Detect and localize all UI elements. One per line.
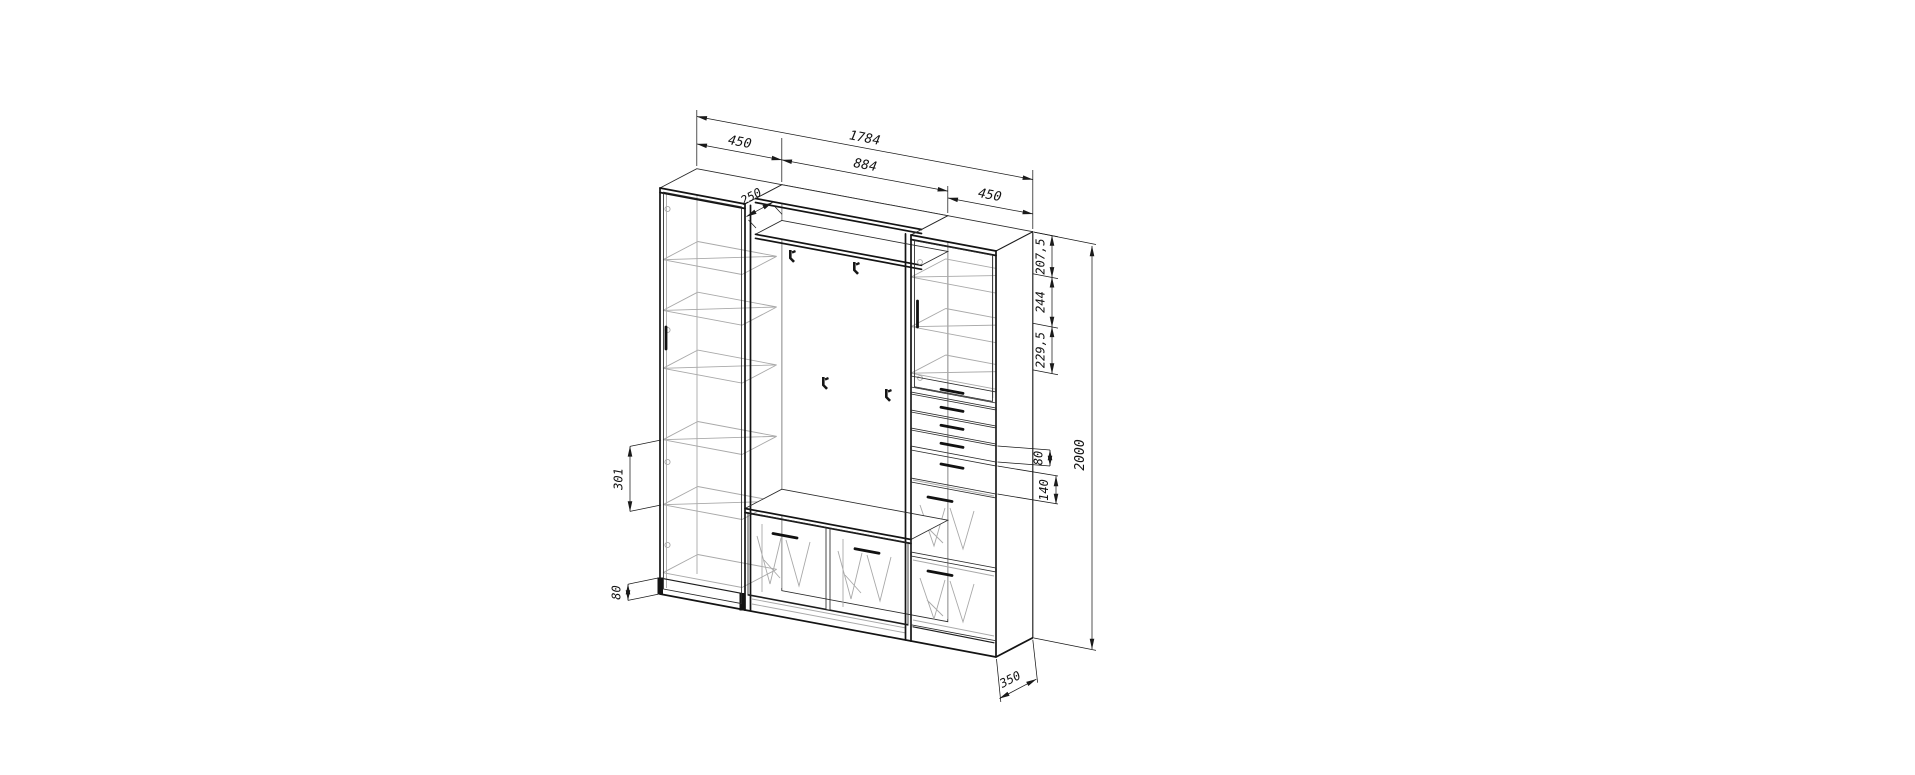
dim-right-gap-lower: 229,5 (1034, 332, 1048, 368)
dim-left-shelf-spacing: 301 (612, 468, 626, 491)
dim-drawer-height: 80 (1032, 451, 1046, 465)
dim-right-cabinet-width: 450 (977, 186, 1003, 205)
drawing-canvas: 1784 450 884 450 250 207,5 244 229,5 80 … (0, 0, 1915, 775)
coat-hooks (789, 250, 892, 402)
dim-overall-height: 2000 (1073, 439, 1088, 470)
dim-left-cabinet-width: 450 (727, 133, 753, 152)
dim-right-gap-top: 207,5 (1034, 238, 1048, 274)
furniture-technical-drawing: 1784 450 884 450 250 207,5 244 229,5 80 … (0, 0, 1915, 775)
dim-plinth-height: 80 (610, 585, 624, 599)
dim-cabinet-depth: 350 (996, 668, 1023, 691)
surfaces (660, 169, 1033, 657)
dim-right-gap-upper: 244 (1034, 291, 1048, 313)
drawer-stack (911, 376, 996, 641)
dim-middle-width: 884 (852, 156, 878, 175)
dim-bottom-drawer-height: 140 (1037, 479, 1051, 501)
bench-door-handle-left (773, 534, 797, 539)
bench-door-handle-right (855, 549, 879, 554)
